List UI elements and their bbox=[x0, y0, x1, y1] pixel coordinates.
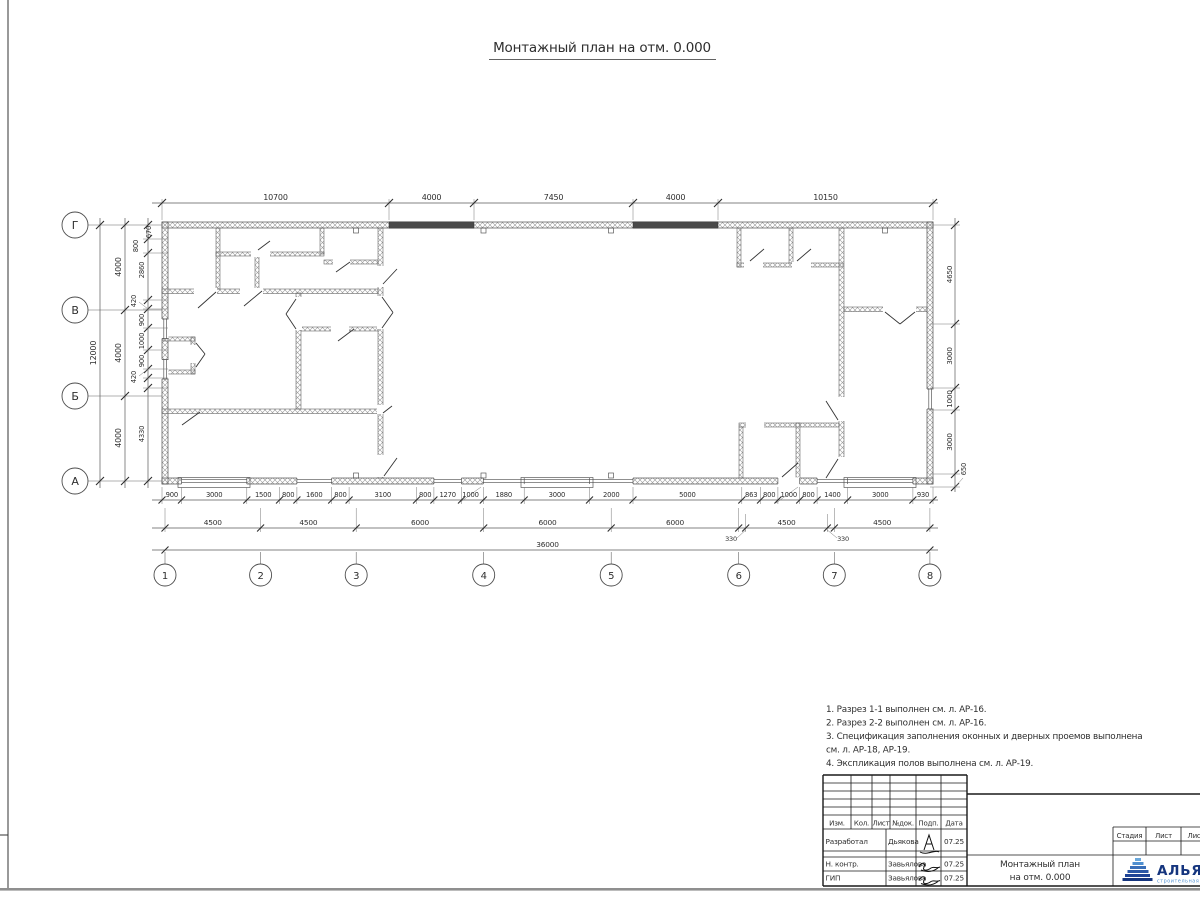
tb-row2-role: Н. контр. bbox=[826, 860, 859, 869]
dim-b1-7: 800 bbox=[419, 491, 431, 499]
dim-b1-18: 1400 bbox=[824, 491, 841, 499]
note-line-5: 4. Экспликация полов выполнена см. л. АР… bbox=[826, 759, 1033, 769]
axis-col-2: 2 bbox=[258, 571, 264, 582]
note-line-1: 1. Разрез 1-1 выполнен см. л. АР-16. bbox=[826, 705, 986, 715]
dim-left-total: 12000 bbox=[89, 341, 98, 366]
dim-left-inner-900b: 900 bbox=[138, 355, 146, 367]
dim-right-0: 4650 bbox=[945, 265, 954, 283]
tb-header-kol: Кол. bbox=[854, 820, 869, 828]
dim-b2-extra-0: 330 bbox=[725, 535, 737, 543]
dim-top-1: 4000 bbox=[422, 193, 442, 202]
dim-b2-2: 6000 bbox=[411, 518, 430, 527]
axis-row-g: Г bbox=[72, 219, 79, 232]
dim-b1-13: 5000 bbox=[679, 491, 696, 499]
dim-b1-8: 1270 bbox=[439, 491, 456, 499]
note-line-2: 2. Разрез 2-2 выполнен см. л. АР-16. bbox=[826, 719, 986, 729]
tb-stage-list2: Лист bbox=[1188, 832, 1200, 840]
dim-top-4: 10150 bbox=[813, 193, 838, 202]
axis-col-3: 3 bbox=[353, 571, 359, 582]
dim-b1-16: 1000 bbox=[781, 491, 798, 499]
dim-left-inner-4330: 4330 bbox=[138, 426, 146, 443]
axis-col-7: 7 bbox=[831, 571, 837, 582]
dim-b2-0: 4500 bbox=[204, 518, 223, 527]
company-logo-text: АЛЬЯНС bbox=[1157, 863, 1200, 879]
tb-header-podp: Подп. bbox=[918, 820, 938, 828]
dim-b1-12: 2000 bbox=[603, 491, 620, 499]
axis-row-a: А bbox=[71, 475, 79, 488]
dim-left-inner-800: 800 bbox=[132, 240, 140, 252]
sandwich-panel bbox=[389, 222, 474, 228]
axis-bubbles-bottom: 1 2 3 4 5 6 7 8 bbox=[154, 552, 941, 586]
dimension-chain-left: 12000 4000 4000 4000 670 800 2860 420 90… bbox=[88, 218, 168, 488]
tb-row2-date: 07.25 bbox=[944, 860, 964, 869]
axis-row-b: Б bbox=[71, 390, 78, 403]
tb-stage-stadiya: Стадия bbox=[1117, 832, 1143, 840]
dim-b1-5: 800 bbox=[334, 491, 346, 499]
title-block: Изм. Кол. Лист №док. Подп. Дата Разработ… bbox=[823, 775, 1200, 886]
company-logo-subtext: строительная компания bbox=[1157, 880, 1200, 885]
tb-header-izm: Изм. bbox=[829, 820, 845, 828]
dim-right-2: 1000 bbox=[945, 390, 954, 408]
dim-b1-4: 1600 bbox=[306, 491, 323, 499]
dim-b2-4: 6000 bbox=[666, 518, 685, 527]
floor-plan-drawing: Монтажный план на отм. 0.000 bbox=[0, 0, 1200, 900]
tb-doc-title-line1: Монтажный план bbox=[1000, 860, 1080, 870]
dim-right-3: 3000 bbox=[945, 433, 954, 451]
tb-row1-role: Разработал bbox=[826, 837, 869, 846]
axis-bubbles-left: Г В Б А bbox=[62, 212, 88, 494]
dim-b1-17: 800 bbox=[802, 491, 814, 499]
sheet-frame bbox=[0, 0, 1200, 891]
tb-row3-role: ГИП bbox=[826, 874, 841, 883]
dim-bottom-total: 36000 bbox=[536, 540, 559, 549]
dim-b1-20: 930 bbox=[917, 491, 929, 499]
tb-row3-date: 07.25 bbox=[944, 874, 964, 883]
dimension-chain-bottom-1: 900 3000 1500 800 1600 800 3100 800 1270… bbox=[152, 487, 938, 504]
dim-right-4: 650 bbox=[960, 463, 968, 475]
dim-left-bay-2: 4000 bbox=[114, 428, 123, 448]
dimension-chain-right: 4650 3000 1000 3000 650 bbox=[930, 218, 968, 492]
dim-left-inner-420a: 420 bbox=[130, 295, 138, 307]
axis-col-1: 1 bbox=[162, 571, 168, 582]
dim-b2-extra-1: 330 bbox=[837, 535, 849, 543]
note-line-4: см. л. АР-18, АР-19. bbox=[826, 746, 910, 756]
axis-col-6: 6 bbox=[736, 571, 742, 582]
axis-row-v: В bbox=[71, 304, 78, 317]
page-title: Монтажный план на отм. 0.000 bbox=[493, 40, 711, 56]
dim-b1-11: 3000 bbox=[549, 491, 566, 499]
dim-left-inner-1000: 1000 bbox=[138, 333, 146, 350]
dim-b1-0: 900 bbox=[166, 491, 178, 499]
dim-b2-5: 4500 bbox=[777, 518, 796, 527]
dim-b1-10: 1880 bbox=[496, 491, 513, 499]
dim-b2-6: 4500 bbox=[873, 518, 892, 527]
signature-razrabotal bbox=[920, 835, 939, 853]
tb-header-data: Дата bbox=[945, 820, 962, 828]
dim-b1-3: 800 bbox=[282, 491, 294, 499]
interior-walls bbox=[162, 228, 927, 478]
dim-left-inner-900a: 900 bbox=[138, 314, 146, 326]
tb-row1-name: Дьякова bbox=[888, 837, 919, 846]
dim-b1-14: 863 bbox=[745, 491, 757, 499]
drawing-sheet: Монтажный план на отм. 0.000 bbox=[0, 0, 1200, 900]
company-logo-icon bbox=[1123, 858, 1153, 881]
dim-b1-19: 3000 bbox=[872, 491, 889, 499]
dimension-chain-bottom-total: 36000 bbox=[152, 540, 938, 554]
note-line-3: 3. Спецификация заполнения оконных и две… bbox=[826, 732, 1142, 742]
dim-b1-6: 3100 bbox=[375, 491, 392, 499]
dim-right-1: 3000 bbox=[945, 347, 954, 365]
dim-left-inner-420b: 420 bbox=[130, 371, 138, 383]
dim-b2-3: 6000 bbox=[538, 518, 557, 527]
dim-left-inner-670: 670 bbox=[145, 226, 153, 238]
dim-top-2: 7450 bbox=[544, 193, 564, 202]
dim-left-bay-0: 4000 bbox=[114, 257, 123, 277]
door-leaves bbox=[182, 241, 915, 478]
dimension-chain-top: 10700 4000 7450 4000 10150 bbox=[152, 193, 938, 220]
tb-header-list: Лист bbox=[873, 820, 890, 828]
dim-left-bay-1: 4000 bbox=[114, 343, 123, 363]
windows bbox=[162, 319, 934, 488]
dim-b2-1: 4500 bbox=[299, 518, 318, 527]
axis-col-8: 8 bbox=[927, 571, 933, 582]
tb-header-ndok: №док. bbox=[892, 820, 914, 828]
dim-left-inner-2860: 2860 bbox=[138, 262, 146, 279]
dim-b1-2: 1500 bbox=[255, 491, 272, 499]
dim-top-3: 4000 bbox=[666, 193, 686, 202]
tb-stage-list1: Лист bbox=[1155, 832, 1172, 840]
dim-b1-15: 800 bbox=[763, 491, 775, 499]
tb-doc-title-line2: на отм. 0.000 bbox=[1010, 873, 1071, 883]
tb-row1-date: 07.25 bbox=[944, 837, 964, 846]
dim-b1-1: 3000 bbox=[206, 491, 223, 499]
outer-walls bbox=[162, 222, 933, 484]
axis-col-5: 5 bbox=[608, 571, 614, 582]
drawing-title: Монтажный план на отм. 0.000 bbox=[489, 40, 716, 60]
notes: 1. Разрез 1-1 выполнен см. л. АР-16. 2. … bbox=[826, 705, 1142, 769]
dim-top-0: 10700 bbox=[263, 193, 288, 202]
axis-col-4: 4 bbox=[481, 571, 487, 582]
sandwich-panel bbox=[633, 222, 718, 228]
dim-b1-9: 1000 bbox=[462, 491, 479, 499]
dimension-chain-bottom-2: 4500 4500 6000 6000 6000 4500 4500 330 3… bbox=[152, 508, 938, 543]
